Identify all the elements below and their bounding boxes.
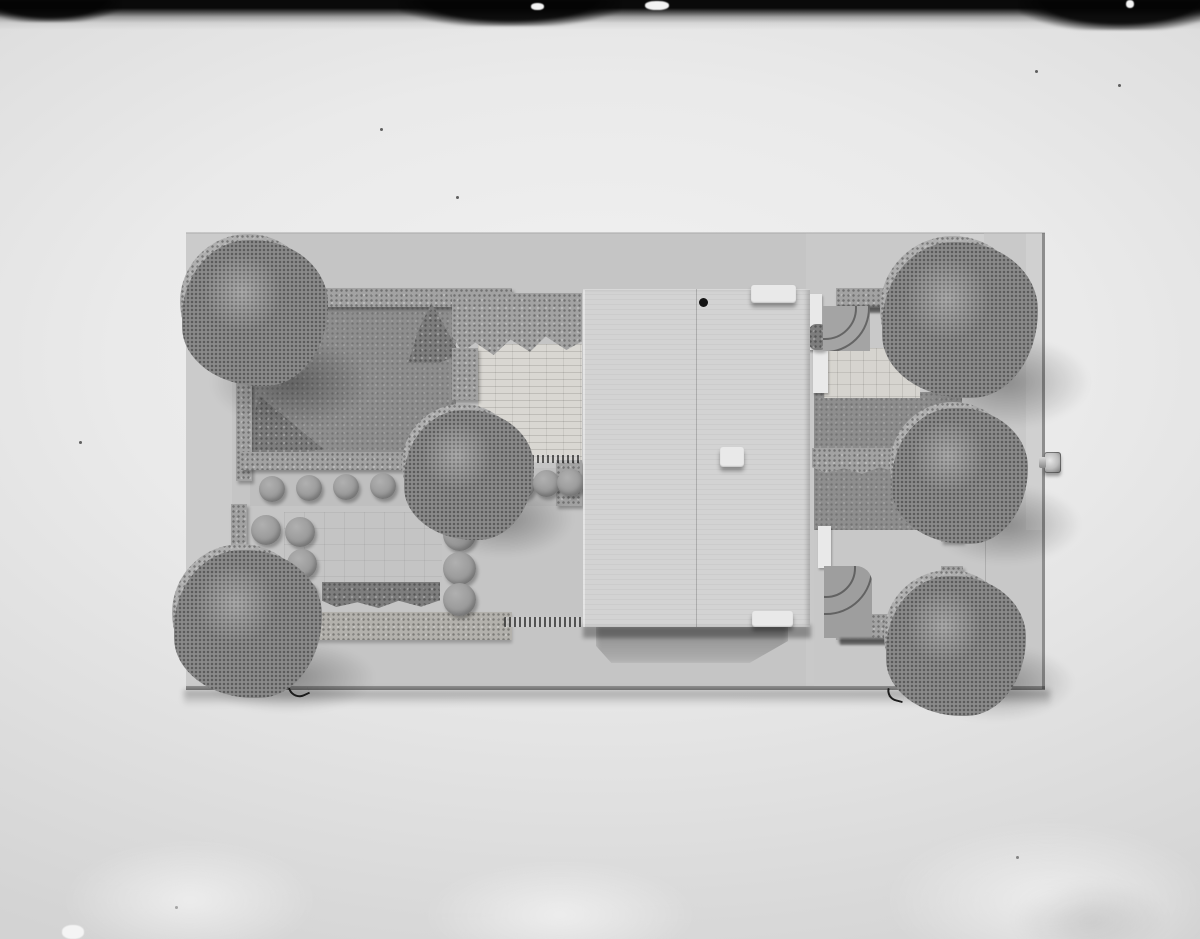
bush-ball [296, 475, 322, 501]
bush-ball [443, 552, 476, 585]
bush-ball [285, 517, 315, 547]
dust-speck [456, 196, 459, 199]
roof-vent-dot [699, 298, 708, 307]
rooftop-block-top [751, 285, 796, 303]
bush-ball [333, 474, 359, 500]
film-edge-speck [531, 3, 544, 10]
photograph: Top view of an architectural scale model… [0, 0, 1200, 939]
bush-ball [443, 583, 476, 616]
rooftop-block-middle [720, 447, 744, 467]
dashed-border-strip-lower [504, 617, 588, 627]
baseboard-top-edge [186, 232, 1045, 234]
roof-seam [696, 289, 697, 627]
hedge-stub-vertical [452, 348, 478, 400]
mounting-pin [1044, 452, 1061, 473]
tree-middle-left [402, 404, 522, 524]
wall-strip-white-lower [813, 349, 828, 393]
hedge-bar-dark-lower [322, 582, 440, 608]
film-edge-speck [645, 1, 669, 10]
film-edge-speck [1126, 0, 1134, 8]
tree-top-left [180, 234, 316, 370]
bush-ball [259, 476, 285, 502]
hedge-strip-middle [240, 452, 416, 470]
bush-ball [251, 515, 281, 545]
curved-stair-feature-lower [824, 566, 872, 638]
shadow-blob [1010, 880, 1170, 939]
dust-speck [1035, 70, 1038, 73]
dust-speck [79, 441, 82, 444]
highlight-blob [420, 860, 700, 939]
highlight-blob [60, 840, 320, 939]
tree-top-right [880, 236, 1026, 382]
bush-ball [557, 469, 584, 496]
tree-bottom-left [172, 544, 310, 682]
dust-speck [380, 128, 383, 131]
film-edge-blotch [400, 0, 620, 26]
tree-middle-right [890, 402, 1016, 528]
building-shadow [596, 625, 788, 663]
wall-strip-white-plaza [818, 526, 831, 568]
tree-bottom-right [884, 570, 1014, 700]
rooftop-block-bottom [752, 611, 793, 627]
curved-stair-feature-upper [823, 306, 870, 351]
bush-ball [370, 473, 396, 499]
highlight-spot [62, 925, 84, 939]
film-edge-blotch [0, 0, 120, 22]
film-edge-blotch [1020, 0, 1200, 30]
dust-speck [1118, 84, 1121, 87]
